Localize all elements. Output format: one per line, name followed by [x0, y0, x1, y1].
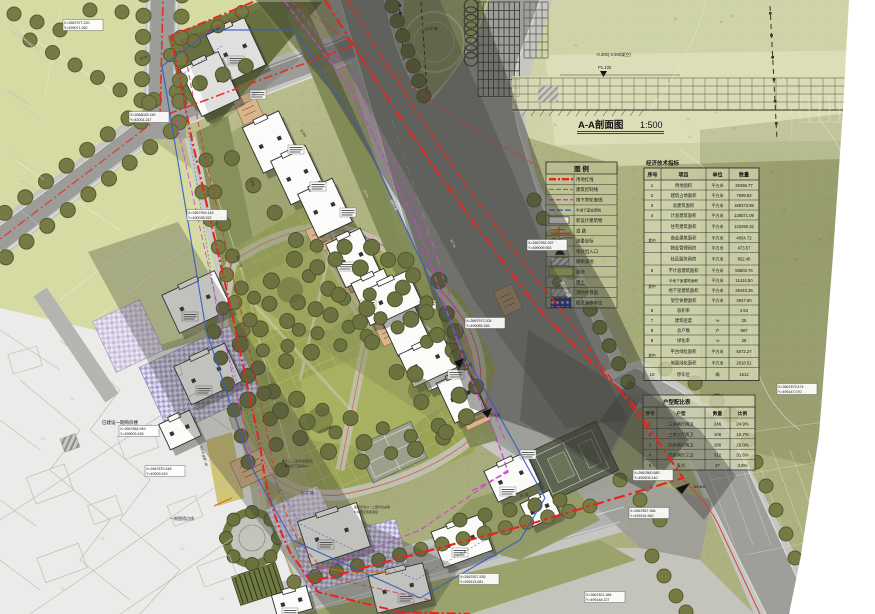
svg-text:平方米: 平方米 — [712, 287, 724, 293]
svg-text:平方米: 平方米 — [712, 348, 724, 354]
svg-text:Y=499003.435: Y=499003.435 — [120, 432, 143, 436]
svg-text:计容建筑面积: 计容建筑面积 — [671, 212, 697, 219]
svg-text:X=2668025.150: X=2668025.150 — [130, 113, 155, 117]
svg-text:8: 8 — [651, 328, 654, 333]
svg-text:X=2667821.384: X=2667821.384 — [586, 593, 611, 597]
svg-text:其中: 其中 — [648, 284, 656, 289]
svg-text:总建筑面积: 总建筑面积 — [673, 202, 695, 209]
svg-text:平方米: 平方米 — [712, 192, 724, 198]
svg-text:单位: 单位 — [712, 172, 722, 179]
svg-text:数量: 数量 — [739, 172, 749, 179]
svg-text:Y=499205.140: Y=499205.140 — [634, 476, 657, 480]
svg-text:入口广场: 入口广场 — [300, 490, 314, 495]
svg-text:1:500: 1:500 — [640, 120, 663, 130]
svg-text:X=2667972.204: X=2667972.204 — [466, 319, 491, 323]
svg-text:其中: 其中 — [648, 238, 656, 243]
svg-text:246: 246 — [714, 422, 722, 427]
svg-text:户: 户 — [716, 327, 720, 333]
svg-text:户型配比表: 户型配比表 — [662, 398, 691, 406]
svg-text:平方米: 平方米 — [712, 212, 724, 218]
svg-text:商业建筑面积: 商业建筑面积 — [671, 234, 697, 241]
svg-text:Y=499085.165: Y=499085.165 — [466, 324, 489, 328]
svg-text:平方米: 平方米 — [712, 202, 724, 208]
svg-text:平方米: 平方米 — [712, 277, 724, 283]
svg-text:7.2: 7.2 — [40, 437, 45, 441]
svg-text:平方米: 平方米 — [712, 234, 724, 240]
svg-text:X=2667860.680: X=2667860.680 — [634, 471, 659, 475]
svg-text:半地下室建筑面积: 半地下室建筑面积 — [669, 278, 699, 283]
svg-text:11424.50: 11424.50 — [735, 278, 753, 283]
svg-text:30496.77: 30496.77 — [735, 183, 753, 188]
svg-text:半地下室轮廓线: 半地下室轮廓线 — [576, 208, 602, 213]
svg-text:Y=499147.070: Y=499147.070 — [778, 390, 801, 394]
svg-text:25: 25 — [742, 318, 747, 323]
svg-text:其中: 其中 — [648, 353, 656, 358]
svg-text:4054.72: 4054.72 — [736, 235, 752, 240]
svg-text:%: % — [716, 318, 720, 323]
svg-text:6.3L浮空走廊连接: 6.3L浮空走廊连接 — [354, 509, 378, 514]
svg-text:用地面积: 用地面积 — [675, 182, 693, 189]
svg-text:经济技术指标: 经济技术指标 — [646, 159, 680, 167]
svg-text:473.57: 473.57 — [738, 245, 751, 250]
svg-text:50802.76: 50802.76 — [735, 268, 753, 273]
svg-text:2: 2 — [651, 193, 654, 198]
svg-text:X=2667827.535: X=2667827.535 — [460, 575, 485, 579]
svg-text:平方米: 平方米 — [712, 244, 724, 250]
svg-text:平方米: 平方米 — [712, 256, 724, 262]
svg-text:2818.51: 2818.51 — [736, 360, 752, 365]
svg-text:Y=499113.081: Y=499113.081 — [460, 580, 483, 584]
svg-text:652.48: 652.48 — [738, 257, 751, 262]
svg-text:X=2667959.145: X=2667959.145 — [188, 211, 213, 215]
svg-text:106: 106 — [714, 432, 722, 437]
svg-text:绿化率: 绿化率 — [677, 337, 691, 344]
svg-text:平台绿化面积: 平台绿化面积 — [671, 348, 697, 355]
svg-text:-0.300(-0.900架空): -0.300(-0.900架空) — [596, 51, 632, 58]
svg-text:4.54: 4.54 — [740, 308, 749, 313]
svg-text:容积率: 容积率 — [677, 307, 691, 314]
svg-text:住宅建筑面积: 住宅建筑面积 — [671, 223, 697, 230]
svg-text:3.8%: 3.8% — [737, 463, 747, 468]
svg-text:新设计建筑物: 新设计建筑物 — [576, 217, 603, 224]
svg-text:9: 9 — [651, 338, 654, 343]
svg-text:31.6%: 31.6% — [736, 453, 749, 458]
svg-text:28: 28 — [742, 338, 747, 343]
svg-text:建筑占地面积: 建筑占地面积 — [671, 192, 697, 199]
svg-text:24.9%: 24.9% — [736, 422, 749, 427]
svg-text:7: 7 — [651, 318, 654, 323]
svg-text:Y=49903.519: Y=49903.519 — [146, 472, 167, 476]
svg-text:P1.100: P1.100 — [598, 65, 612, 70]
svg-text:项目: 项目 — [678, 172, 688, 179]
svg-text:Y=42001.247: Y=42001.247 — [130, 118, 151, 122]
svg-text:用地红线: 用地红线 — [576, 176, 594, 183]
svg-text:7.2: 7.2 — [220, 597, 225, 601]
svg-text:1: 1 — [651, 183, 654, 188]
svg-text:平方米: 平方米 — [712, 297, 724, 303]
svg-text:架空休憩面积: 架空休憩面积 — [671, 297, 697, 304]
svg-text:一期围墙边线: 一期围墙边线 — [170, 515, 194, 521]
svg-text:35440.36: 35440.36 — [735, 288, 753, 293]
svg-text:5672.27: 5672.27 — [736, 349, 752, 354]
svg-text:7.2: 7.2 — [70, 397, 75, 401]
svg-text:286: 286 — [714, 442, 722, 447]
svg-text:7.2: 7.2 — [60, 587, 65, 591]
svg-text:X=2667879.474: X=2667879.474 — [778, 385, 803, 389]
svg-text:社区服务用房: 社区服务用房 — [671, 256, 697, 263]
svg-text:地下室轮廓线: 地下室轮廓线 — [576, 196, 603, 203]
svg-text:入口广场: 入口广场 — [424, 26, 438, 31]
svg-text:地面绿化面积: 地面绿化面积 — [671, 359, 697, 366]
svg-text:图 例: 图 例 — [574, 164, 589, 173]
svg-text:189373.85: 189373.85 — [734, 203, 754, 208]
svg-text:X=2667884.949: X=2667884.949 — [120, 427, 145, 431]
svg-text:X=2667977.220: X=2667977.220 — [64, 21, 89, 25]
svg-text:X=2667857.366: X=2667857.366 — [630, 509, 655, 513]
svg-text:已建设一期购房楼: 已建设一期购房楼 — [102, 419, 138, 426]
svg-text:总户数: 总户数 — [677, 327, 691, 334]
svg-text:主入口: 主入口 — [490, 412, 500, 417]
svg-text:X=2667870.448: X=2667870.448 — [146, 467, 171, 471]
svg-text:5: 5 — [651, 268, 654, 273]
svg-text:覆土二、三层半过渡层高: 覆土二、三层半过渡层高 — [282, 459, 313, 463]
svg-text:Y=499099.563: Y=499099.563 — [528, 246, 551, 250]
svg-text:平方米: 平方米 — [712, 182, 724, 188]
svg-text:A-A剖面图: A-A剖面图 — [578, 119, 623, 131]
svg-text:987: 987 — [741, 328, 749, 333]
svg-text:建筑控制线: 建筑控制线 — [576, 186, 599, 193]
svg-text:133390.32: 133390.32 — [734, 224, 754, 229]
svg-text:29.0%: 29.0% — [736, 442, 749, 447]
svg-text:Y=499154.562: Y=499154.562 — [630, 514, 653, 518]
svg-text:一期中设下沉庭院2.4: 一期中设下沉庭院2.4 — [282, 464, 309, 468]
svg-text:Y=499071.262: Y=499071.262 — [64, 26, 87, 30]
svg-text:地下室建筑面积: 地下室建筑面积 — [668, 287, 699, 294]
svg-text:辆: 辆 — [716, 371, 720, 377]
svg-text:4: 4 — [651, 213, 654, 218]
svg-text:3: 3 — [651, 203, 654, 208]
svg-text:7599.82: 7599.82 — [736, 193, 752, 198]
svg-text:Y=490038.322: Y=490038.322 — [188, 216, 211, 220]
svg-text:道 路: 道 路 — [576, 227, 587, 234]
svg-text:比例: 比例 — [738, 410, 748, 417]
svg-text:64.500: 64.500 — [694, 485, 706, 489]
svg-text:10: 10 — [649, 372, 655, 377]
svg-text:平方米: 平方米 — [712, 359, 724, 365]
svg-text:138571.09: 138571.09 — [734, 213, 754, 218]
svg-text:次入口: 次入口 — [462, 362, 472, 367]
svg-text:%: % — [716, 338, 720, 343]
svg-text:3947.90: 3947.90 — [736, 298, 752, 303]
svg-text:物业管理用房: 物业管理用房 — [671, 244, 697, 251]
svg-text:1612: 1612 — [739, 372, 749, 377]
svg-text:平方米: 平方米 — [712, 223, 724, 229]
svg-text:序号: 序号 — [646, 172, 657, 179]
svg-text:6: 6 — [651, 308, 654, 313]
svg-text:Y=499148.227: Y=499148.227 — [586, 598, 609, 602]
svg-text:数量: 数量 — [713, 410, 723, 417]
svg-text:不计容建筑面积: 不计容建筑面积 — [668, 267, 699, 274]
svg-text:7.2: 7.2 — [180, 547, 185, 551]
svg-text:X=2667954.267: X=2667954.267 — [528, 241, 553, 245]
svg-text:停车位: 停车位 — [677, 371, 691, 378]
svg-text:首层平台以一二层平台采用: 首层平台以一二层平台采用 — [354, 504, 390, 509]
svg-text:7.2: 7.2 — [100, 537, 105, 541]
svg-text:平方米: 平方米 — [712, 267, 724, 273]
svg-text:建筑密度: 建筑密度 — [675, 317, 693, 324]
svg-text:10.7%: 10.7% — [736, 432, 749, 437]
